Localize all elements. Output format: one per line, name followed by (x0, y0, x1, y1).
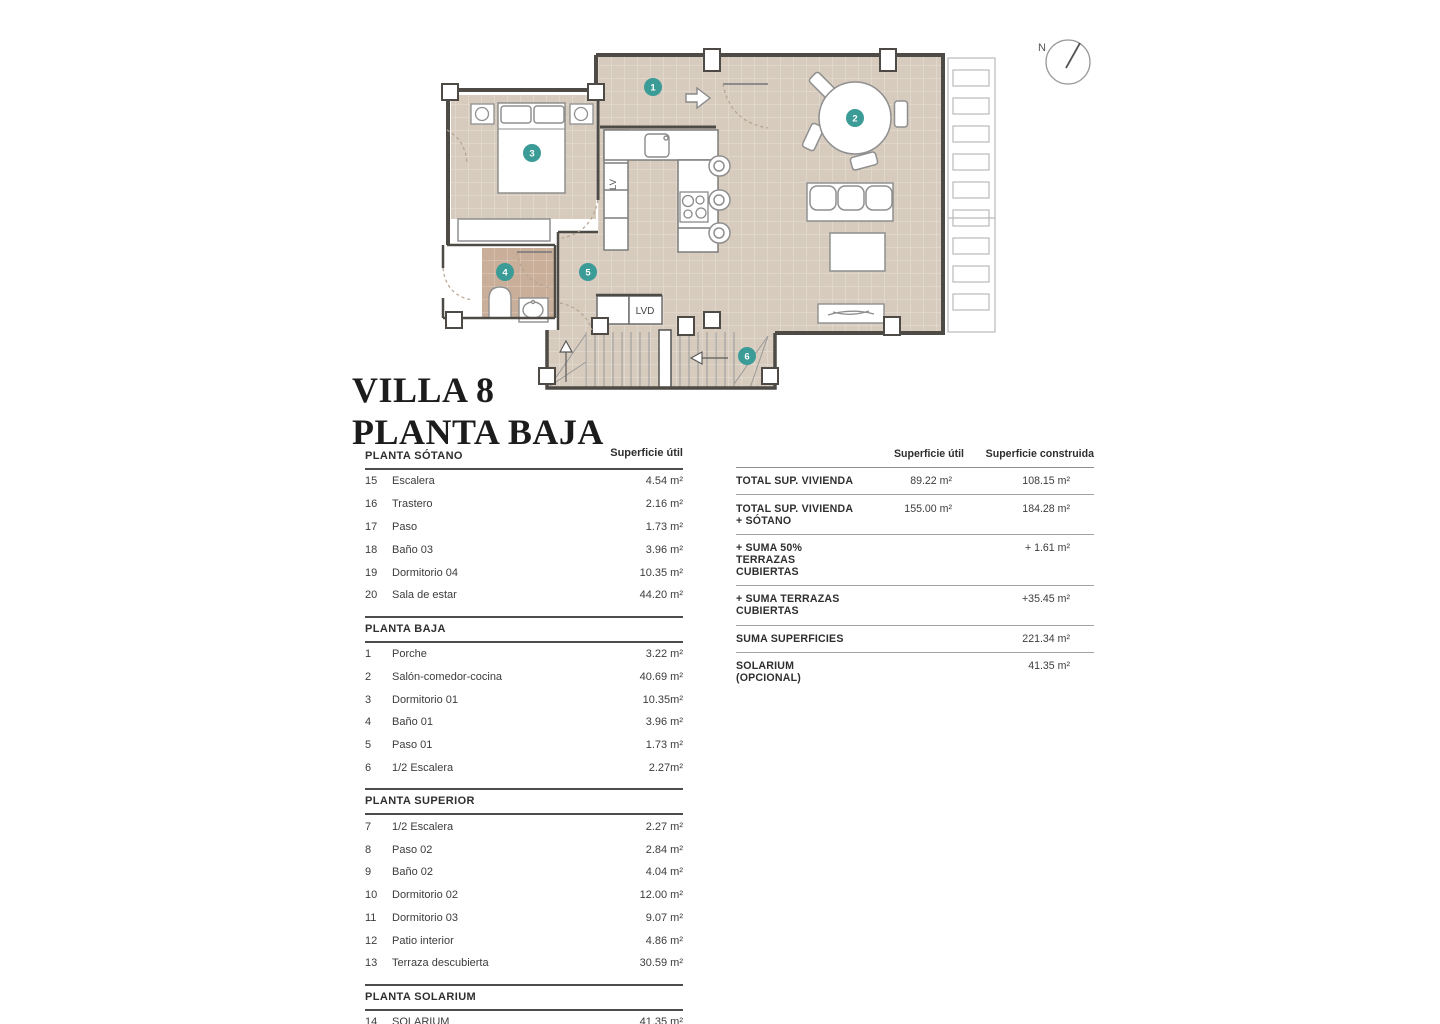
table-row: 5Paso 011.73 m² (365, 734, 683, 757)
sofa (807, 183, 893, 221)
svg-text:N: N (1038, 42, 1046, 54)
svg-text:4: 4 (502, 267, 508, 278)
svg-text:1: 1 (650, 82, 656, 93)
coffee-table (830, 233, 885, 271)
col-superficie-util: Superficie útil (872, 448, 964, 460)
table-row: 4Baño 013.96 m² (365, 711, 683, 734)
table-row: 3Dormitorio 0110.35m² (365, 688, 683, 711)
tv-bench (818, 304, 884, 323)
table-row: 1Porche3.22 m² (365, 643, 683, 666)
section-planta-superior: PLANTA SUPERIOR 71/2 Escalera2.27 m² 8Pa… (365, 788, 683, 974)
floorplan-sheet: 1 2 3 4 5 6 LV LVD N VILLA 8 PLANTA BAJA (0, 0, 1440, 1024)
kitchen-sink-icon (645, 134, 669, 157)
dishwasher-label: LV (608, 178, 619, 190)
wardrobe (458, 219, 550, 241)
table-row: 61/2 Escalera2.27m² (365, 757, 683, 780)
summary-table: Superficie útil Superficie construida TO… (736, 448, 1094, 691)
table-row: 2Salón-comedor-cocina40.69 m² (365, 665, 683, 688)
page-title-line2: PLANTA BAJA (352, 412, 604, 454)
table-row: 15Escalera4.54 m² (365, 470, 683, 493)
washer-label: LVD (636, 306, 655, 317)
table-row: 14SOLARIUM41.35 m² (365, 1011, 683, 1024)
summary-row: SUMA SUPERFICIES 221.34 m² (736, 626, 1094, 653)
summary-row: TOTAL SUP. VIVIENDA + SÓTANO 155.00 m² 1… (736, 495, 1094, 534)
side-terrace-pergola (948, 58, 995, 332)
table-row: 12Patio interior4.86 m² (365, 929, 683, 952)
toilet-icon (489, 287, 511, 317)
table-row: 20Sala de estar44.20 m² (365, 584, 683, 607)
svg-text:6: 6 (744, 351, 749, 362)
section-title: PLANTA SÓTANO (365, 450, 463, 462)
page-title: VILLA 8 PLANTA BAJA (352, 370, 604, 454)
table-row: 71/2 Escalera2.27 m² (365, 815, 683, 838)
table-row: 9Baño 024.04 m² (365, 861, 683, 884)
summary-row: + SUMA TERRAZAS CUBIERTAS +35.45 m² (736, 586, 1094, 625)
table-row: 11Dormitorio 039.07 m² (365, 907, 683, 930)
svg-text:3: 3 (529, 148, 534, 159)
svg-text:5: 5 (585, 267, 591, 278)
cooktop-icon (680, 192, 708, 222)
section-planta-baja: PLANTA BAJA 1Porche3.22 m² 2Salón-comedo… (365, 616, 683, 780)
table-row: 16Trastero2.16 m² (365, 493, 683, 516)
col-superficie-construida: Superficie construida (964, 448, 1094, 460)
stairs-divider-wall (659, 330, 671, 388)
superficie-util-header: Superficie útil (610, 447, 683, 459)
table-row: 17Paso1.73 m² (365, 516, 683, 539)
table-row: 18Baño 033.96 m² (365, 538, 683, 561)
summary-row: SOLARIUM (OPCIONAL) 41.35 m² (736, 653, 1094, 691)
section-planta-solarium: PLANTA SOLARIUM 14SOLARIUM41.35 m² (365, 984, 683, 1024)
summary-row: TOTAL SUP. VIVIENDA 89.22 m² 108.15 m² (736, 468, 1094, 495)
svg-text:2: 2 (852, 113, 857, 124)
table-row: 19Dormitorio 0410.35 m² (365, 561, 683, 584)
areas-table: PLANTA SÓTANO Superficie útil 15Escalera… (365, 450, 683, 1024)
kitchen-stools (709, 156, 730, 243)
table-row: 13Terraza descubierta30.59 m² (365, 952, 683, 975)
section-title: PLANTA SOLARIUM (365, 991, 476, 1003)
north-compass-icon: N (1038, 40, 1090, 84)
section-planta-sotano: PLANTA SÓTANO Superficie útil 15Escalera… (365, 450, 683, 607)
summary-header-row: Superficie útil Superficie construida (736, 448, 1094, 468)
summary-row: + SUMA 50% TERRAZAS CUBIERTAS + 1.61 m² (736, 535, 1094, 586)
page-title-line1: VILLA 8 (352, 370, 604, 412)
section-title: PLANTA SUPERIOR (365, 795, 475, 807)
section-title: PLANTA BAJA (365, 623, 446, 635)
floorplan-drawing: 1 2 3 4 5 6 LV LVD N (0, 0, 1440, 1024)
table-row: 10Dormitorio 0212.00 m² (365, 884, 683, 907)
table-row: 8Paso 022.84 m² (365, 838, 683, 861)
